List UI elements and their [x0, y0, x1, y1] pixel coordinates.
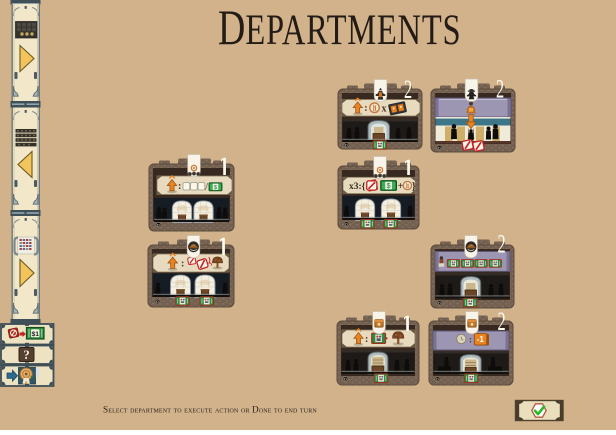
svg-text:D: D [436, 377, 439, 382]
svg-text:D: D [156, 299, 159, 304]
svg-text:2: 2 [404, 75, 412, 104]
svg-text::: : [469, 335, 472, 345]
svg-text:x: x [382, 104, 387, 115]
svg-text:D: D [438, 301, 441, 306]
svg-text:Select department to execute a: Select department to execute action or D… [103, 405, 317, 415]
svg-text:D: D [157, 222, 160, 227]
svg-text:D: D [345, 222, 348, 227]
svg-text:D: D [344, 377, 347, 382]
svg-text:$1: $1 [32, 331, 40, 338]
svg-text:D: D [438, 145, 441, 150]
svg-text:2: 2 [498, 307, 506, 336]
svg-text:D: D [345, 143, 348, 148]
svg-text:2: 2 [498, 230, 506, 259]
svg-text:}: } [412, 182, 416, 193]
svg-text::: : [178, 181, 181, 192]
svg-text::: : [364, 103, 367, 114]
svg-text:2: 2 [496, 75, 504, 104]
svg-text:-1: -1 [477, 335, 485, 344]
svg-text:DEPARTMENTS: DEPARTMENTS [218, 0, 461, 55]
svg-text::: : [365, 334, 368, 345]
svg-text::: : [181, 259, 184, 270]
svg-text:?: ? [23, 347, 30, 362]
svg-text:x3:{: x3:{ [349, 182, 366, 192]
